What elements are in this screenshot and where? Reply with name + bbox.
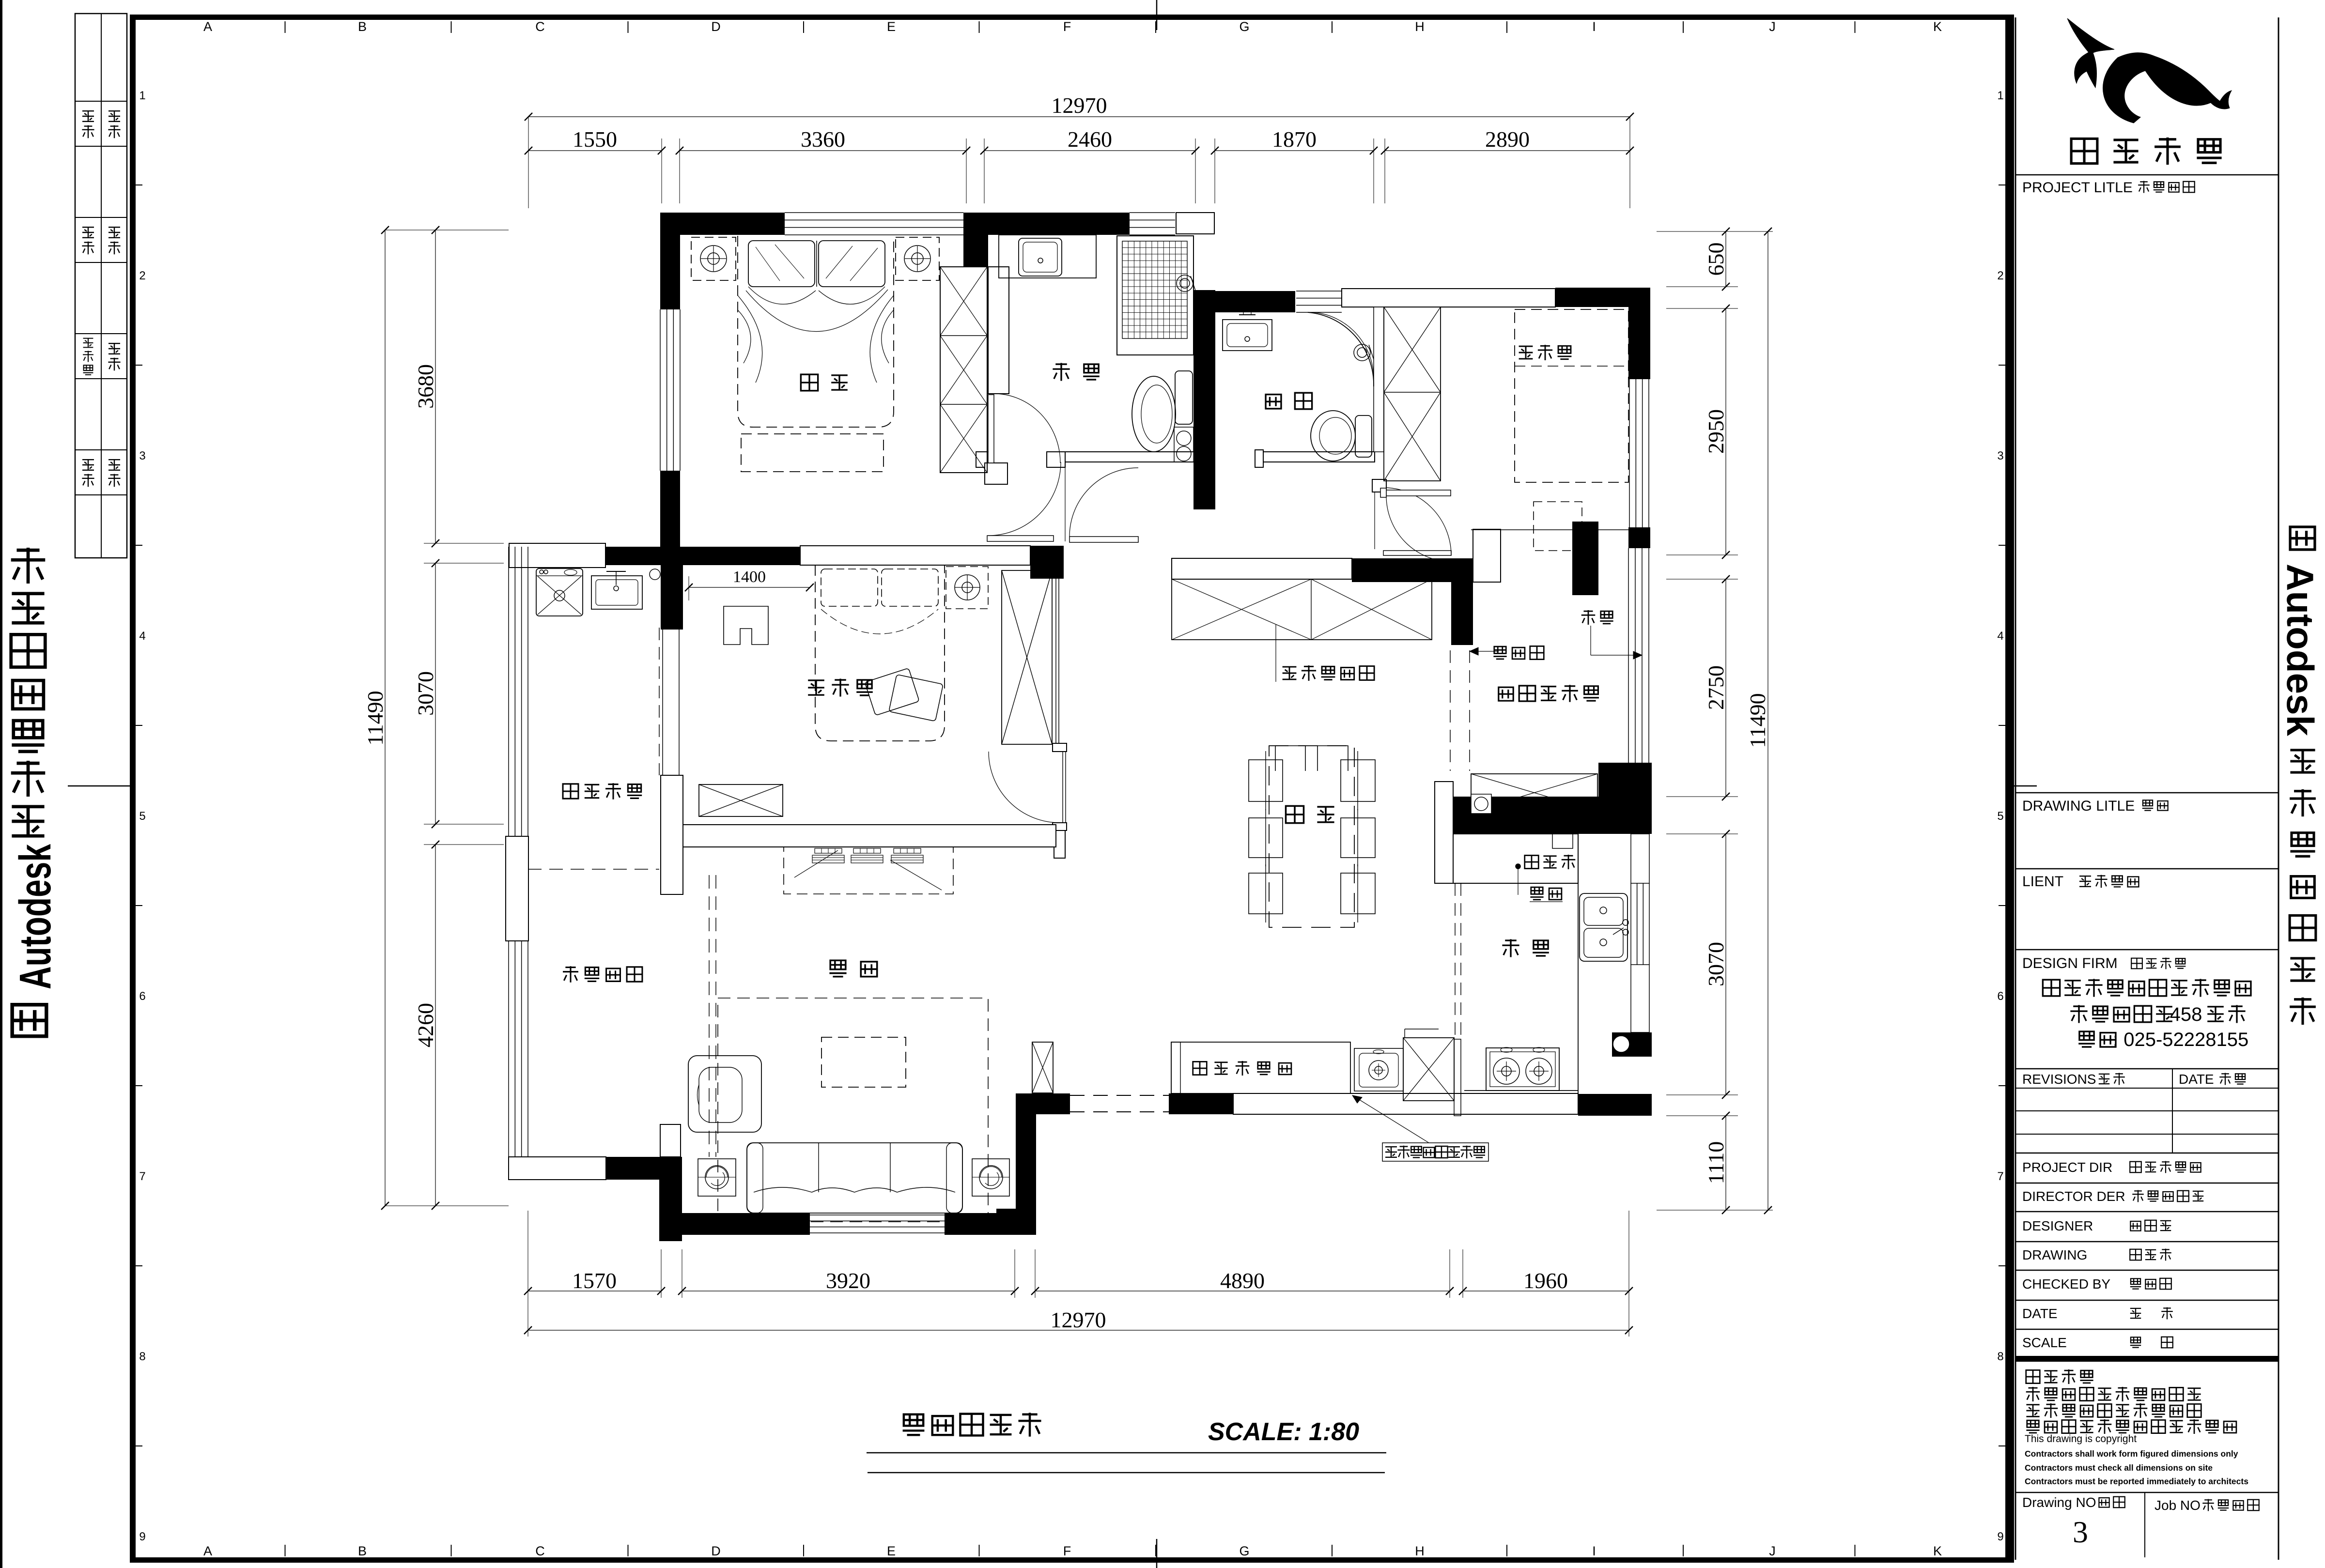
svg-text:1570: 1570 [572, 1268, 617, 1293]
svg-text:11490: 11490 [1745, 693, 1770, 748]
svg-text:Contractors must check all dim: Contractors must check all dimensions on… [2025, 1463, 2213, 1473]
svg-text:4890: 4890 [1220, 1268, 1265, 1293]
svg-text:: 025-52228155: : 025-52228155 [2113, 1029, 2248, 1050]
svg-text:Job NO: Job NO [2154, 1498, 2201, 1513]
svg-text:4: 4 [1997, 630, 2003, 643]
svg-text:DRAWING: DRAWING [2022, 1247, 2087, 1262]
svg-text:B: B [358, 1544, 367, 1558]
svg-text:G: G [1239, 19, 1249, 34]
svg-text:1960: 1960 [1523, 1268, 1568, 1293]
svg-text:1110: 1110 [1704, 1141, 1728, 1184]
svg-text:H: H [1415, 1544, 1425, 1558]
svg-text:F: F [1063, 19, 1071, 34]
svg-text:4: 4 [139, 630, 145, 643]
svg-text:G: G [1239, 1544, 1249, 1558]
svg-text:C: C [535, 19, 545, 34]
svg-text:2: 2 [1997, 269, 2003, 282]
svg-text:H: H [1415, 19, 1425, 34]
svg-text:3070: 3070 [413, 671, 438, 716]
svg-text:SCALE: SCALE [2022, 1335, 2067, 1350]
svg-text:Contractors shall work form fi: Contractors shall work form figured dime… [2025, 1449, 2238, 1459]
svg-text:2950: 2950 [1704, 409, 1728, 454]
svg-text:650: 650 [1704, 243, 1728, 276]
svg-text:2890: 2890 [1485, 127, 1530, 152]
svg-text:D: D [711, 19, 721, 34]
svg-text:J: J [1769, 19, 1776, 34]
svg-text:Contractors must be reported i: Contractors must be reported immediately… [2025, 1476, 2248, 1486]
svg-text:DESIGNER: DESIGNER [2022, 1218, 2093, 1233]
svg-text:CHECKED BY: CHECKED BY [2022, 1276, 2110, 1291]
svg-text:3920: 3920 [826, 1268, 870, 1293]
svg-text:DRAWING LITLE: DRAWING LITLE [2022, 798, 2135, 814]
svg-text:DESIGN FIRM: DESIGN FIRM [2022, 955, 2118, 971]
svg-text:2460: 2460 [1068, 127, 1112, 152]
svg-text:7: 7 [1997, 1170, 2003, 1183]
svg-text:3: 3 [139, 449, 145, 462]
svg-text:2: 2 [139, 269, 145, 282]
svg-text:A: A [203, 19, 212, 34]
svg-text:5: 5 [139, 810, 145, 823]
svg-text:458: 458 [2170, 1004, 2202, 1025]
svg-text:Drawing NO: Drawing NO [2022, 1495, 2096, 1510]
svg-text:K: K [1933, 1544, 1942, 1558]
svg-text:Autodesk: Autodesk [11, 844, 60, 989]
svg-text:4260: 4260 [413, 1003, 438, 1047]
svg-text:DATE: DATE [2179, 1072, 2214, 1087]
svg-text:D: D [711, 1544, 721, 1558]
svg-text:11490: 11490 [363, 691, 387, 745]
svg-text:I: I [1592, 19, 1596, 34]
svg-text:PROJECT LITLE: PROJECT LITLE [2022, 180, 2133, 196]
svg-text:12970: 12970 [1051, 1307, 1106, 1332]
svg-text:1870: 1870 [1272, 127, 1317, 152]
svg-text:This drawing is copyright: This drawing is copyright [2025, 1433, 2137, 1445]
svg-text:E: E [887, 1544, 896, 1558]
svg-text:7: 7 [139, 1170, 145, 1183]
svg-text:9: 9 [139, 1530, 145, 1543]
svg-text:SCALE: 1:80: SCALE: 1:80 [1208, 1418, 1359, 1446]
svg-text:3: 3 [1997, 449, 2003, 462]
svg-text:C: C [535, 1544, 545, 1558]
svg-text:3070: 3070 [1704, 942, 1728, 986]
svg-text:3: 3 [2073, 1515, 2088, 1549]
svg-text:9: 9 [1997, 1530, 2003, 1543]
svg-text:1400: 1400 [733, 568, 766, 586]
svg-text:K: K [1933, 19, 1942, 34]
svg-text:1550: 1550 [573, 127, 617, 152]
svg-text:8: 8 [1997, 1350, 2003, 1363]
svg-text:1: 1 [1997, 89, 2003, 102]
svg-text:5: 5 [1997, 810, 2003, 823]
svg-text:LIENT: LIENT [2022, 874, 2063, 890]
svg-text:8: 8 [139, 1350, 145, 1363]
svg-text:3360: 3360 [801, 127, 845, 152]
svg-text:DIRECTOR DER: DIRECTOR DER [2022, 1189, 2125, 1204]
svg-text:6: 6 [139, 990, 145, 1003]
svg-text:DATE: DATE [2022, 1306, 2058, 1321]
svg-text:Autodesk: Autodesk [2279, 564, 2322, 737]
svg-text:B: B [358, 19, 367, 34]
svg-text:REVISIONS: REVISIONS [2022, 1072, 2096, 1087]
svg-text:3680: 3680 [413, 364, 438, 409]
svg-text:I: I [1592, 1544, 1596, 1558]
svg-text:2750: 2750 [1704, 665, 1728, 710]
svg-text:6: 6 [1997, 990, 2003, 1003]
svg-text:12970: 12970 [1052, 93, 1107, 118]
svg-text:J: J [1769, 1544, 1776, 1558]
svg-text:1: 1 [139, 89, 145, 102]
svg-text:F: F [1063, 1544, 1071, 1558]
svg-text:A: A [203, 1544, 212, 1558]
svg-text:PROJECT DIR: PROJECT DIR [2022, 1160, 2112, 1175]
svg-text:E: E [887, 19, 896, 34]
